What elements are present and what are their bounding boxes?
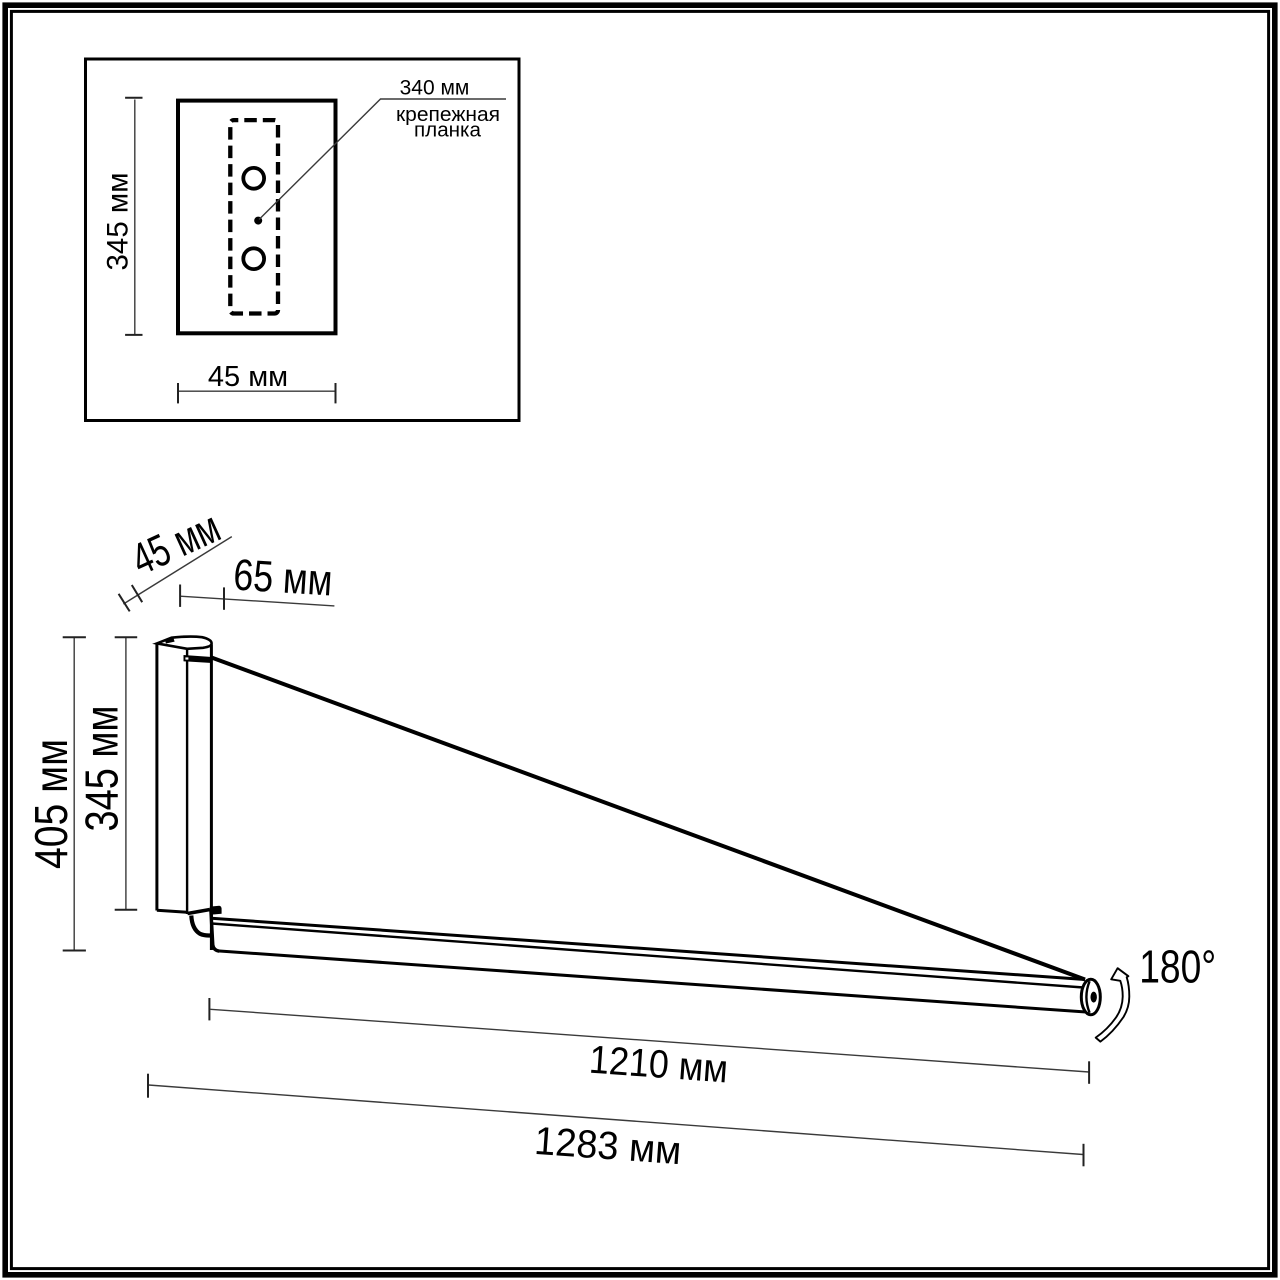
svg-text:45 мм: 45 мм (208, 361, 288, 393)
svg-text:1210 мм: 1210 мм (588, 1038, 730, 1092)
svg-text:345 мм: 345 мм (76, 706, 128, 832)
svg-text:340 мм: 340 мм (400, 77, 470, 100)
svg-text:45 мм: 45 мм (124, 503, 227, 585)
svg-text:65 мм: 65 мм (232, 550, 334, 605)
svg-text:405 мм: 405 мм (25, 739, 77, 869)
svg-text:180°: 180° (1139, 941, 1216, 993)
svg-text:345 мм: 345 мм (102, 173, 135, 271)
svg-text:1283 мм: 1283 мм (533, 1119, 683, 1173)
svg-text:планка: планка (414, 119, 482, 142)
